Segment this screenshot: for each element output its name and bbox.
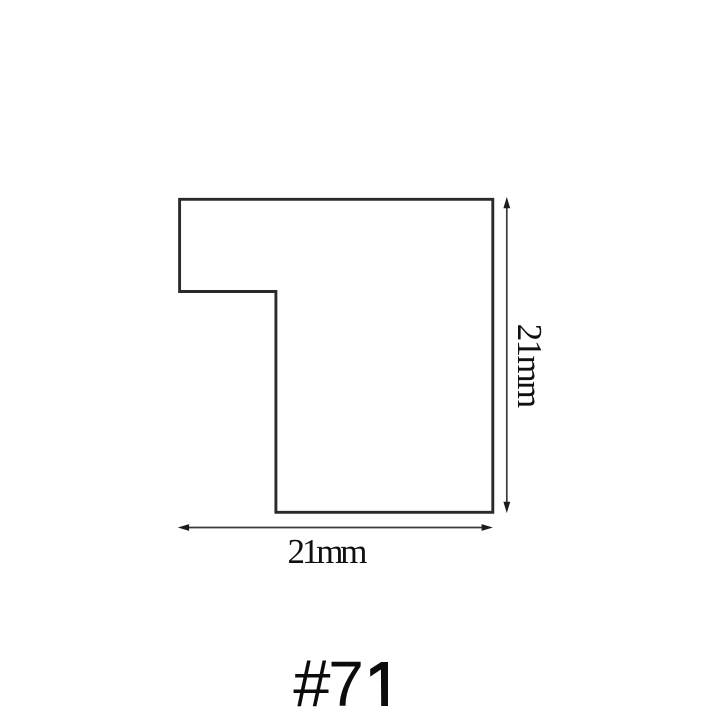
svg-text:7: 7 xyxy=(328,648,364,720)
svg-text:21mm: 21mm xyxy=(288,532,368,571)
svg-text:#: # xyxy=(293,647,330,720)
svg-text:21mm: 21mm xyxy=(510,324,549,409)
